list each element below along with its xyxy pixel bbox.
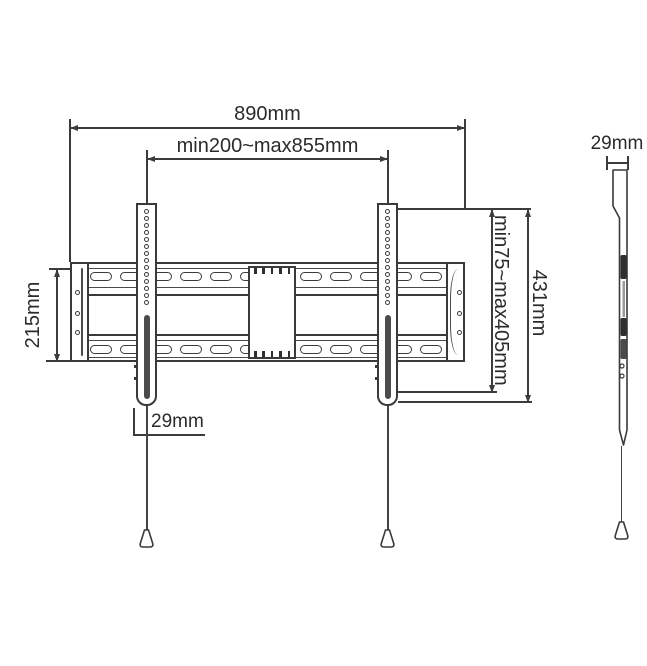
rail-slot [90,272,112,281]
end-cap-hole [75,290,80,295]
end-cap-hole [75,311,80,316]
vesa-hole [144,286,149,291]
vesa-hole [385,223,390,228]
vesa-hole [385,216,390,221]
arrowhead [525,209,531,217]
rail-slot [300,272,322,281]
rail-slot [90,345,112,354]
arm-screw-tick [134,365,138,368]
vesa-hole [385,279,390,284]
screw-tick [279,351,282,357]
dim-bracket-height-label: 431mm [528,263,550,343]
left-vesa-arm [136,203,157,406]
rail-slot [180,345,202,354]
right-arm-hole-column [385,209,390,305]
screw-tick [262,268,265,274]
screw-tick [288,351,291,357]
dim-overall-width-line [70,127,465,129]
vesa-hole [144,279,149,284]
screw-tick [271,351,274,357]
extension-line [69,119,71,262]
pull-cord-left [146,406,148,530]
vesa-hole [385,230,390,235]
vesa-hole [385,258,390,263]
arm-screw-tick [134,377,138,380]
rail-slot [420,272,442,281]
vesa-hole [385,293,390,298]
vesa-hole [385,286,390,291]
profile-inner-edge [623,281,626,317]
extension-line [49,268,71,270]
dim-bracket-height-line [527,209,529,403]
rail-slot [300,345,322,354]
dim-plate-height-line [56,269,58,362]
end-cap-hole [75,330,80,335]
dim-bracket-width-line [133,434,205,436]
vesa-hole [144,293,149,298]
vesa-hole [144,237,149,242]
wall-plate-left-end-cap [70,262,89,362]
end-cap-hole [457,311,462,316]
arrowhead [489,209,495,217]
vesa-hole [144,244,149,249]
right-arm-adjust-slot [385,315,391,399]
dim-plate-height-label: 215mm [22,268,44,362]
dim-vesa-width-line [147,158,388,160]
cord-bell-left [138,528,155,549]
end-cap-hole [457,290,462,295]
rail-slot [330,272,352,281]
center-connecting-plate [248,266,296,359]
plate-screw-ticks-top [254,268,290,274]
dim-overall-width-label: 890mm [70,103,465,126]
screw-tick [254,268,257,274]
screw-tick [262,351,265,357]
end-cap-hole [457,330,462,335]
arrowhead [70,125,78,131]
pull-cord-side [621,446,623,522]
dim-profile-depth-line [606,162,628,164]
vesa-hole [385,244,390,249]
vesa-hole [385,265,390,270]
dim-bracket-width-label: 29mm [151,411,204,433]
left-arm-hole-column [144,209,149,305]
extension-line [46,360,71,362]
vesa-hole [144,230,149,235]
screw-tick [288,268,291,274]
left-arm-adjust-slot [144,315,150,399]
rail-slot [210,272,232,281]
vesa-hole [144,265,149,270]
extension-line [133,408,135,436]
rail-slot [210,345,232,354]
vesa-hole [144,300,149,305]
arm-screw-tick [375,377,379,380]
vesa-hole [385,300,390,305]
tv-mount-dimension-drawing: 890mm min200~max855mm 215mm min75~max405… [0,0,647,666]
right-vesa-arm [377,203,398,406]
rail-cross-section-bottom [621,318,627,336]
cord-bell-right [379,528,396,549]
extension-line [392,208,531,210]
vesa-hole [144,251,149,256]
extension-line [398,391,497,393]
rail-slot [180,272,202,281]
extension-line [464,119,466,209]
extension-line [398,401,532,403]
screw-tick [279,268,282,274]
vesa-hole [144,258,149,263]
dim-profile-depth-label: 29mm [587,133,647,155]
vesa-hole [385,272,390,277]
side-view-profile [598,168,634,458]
screw-tick [254,351,257,357]
dim-vesa-height-line [491,209,493,393]
vesa-hole [385,209,390,214]
profile-bracket-section [621,339,627,359]
vesa-hole [144,223,149,228]
rail-slot [330,345,352,354]
arrowhead [54,269,60,277]
vesa-hole [385,251,390,256]
vesa-hole [144,209,149,214]
cord-bell-side [613,520,630,541]
vesa-hole [144,272,149,277]
pull-cord-right [387,406,389,530]
rail-slot [420,345,442,354]
plate-screw-ticks-bottom [254,351,290,357]
screw-tick [271,268,274,274]
dim-vesa-height-label: min75~max405mm [490,215,512,385]
arrowhead [147,156,155,162]
dim-vesa-width-label: min200~max855mm [147,135,388,158]
end-cap-edge-line [81,268,83,356]
arm-screw-tick [375,365,379,368]
extension-line [387,150,389,204]
rail-cross-section-top [621,255,627,279]
wall-plate-right-end-cap [446,262,465,362]
vesa-hole [385,237,390,242]
extension-line [146,150,148,204]
vesa-hole [144,216,149,221]
